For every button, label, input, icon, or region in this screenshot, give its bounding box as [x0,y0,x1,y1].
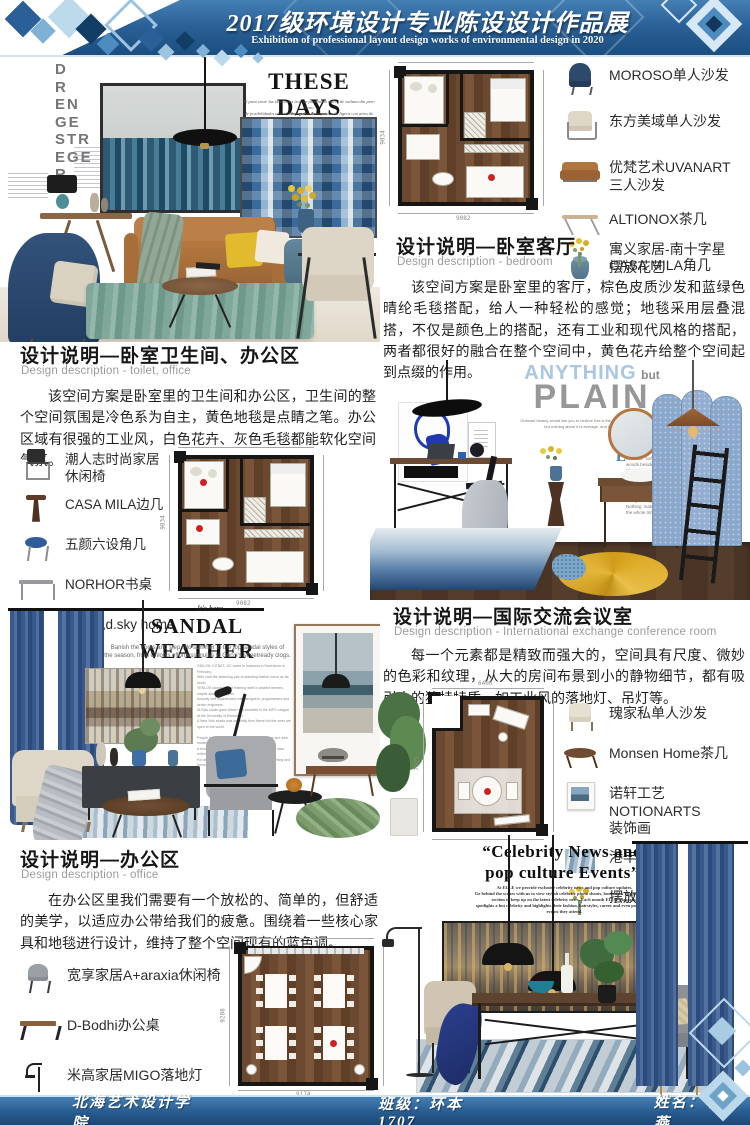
legend-item: 优梵艺术UVANART 三人沙发 [560,154,750,194]
plan-corner-plant [354,1064,365,1075]
decor-vase [101,198,108,212]
plan-toilet [190,467,202,476]
anything-but-plain-collage: ANYTHING but PLAIN Outward beauty would … [370,360,750,600]
bedroom-floor-plan [398,70,534,206]
plan-table-group [314,974,354,1008]
office-desk-icon [18,1012,58,1046]
legend-item-label: 瑰家私单人沙发 [609,700,707,723]
floor-lamp-pole [418,927,420,1075]
legend-item: CASA MILA边几 [16,492,176,526]
legend-item: 寓义家居-南十字星 摆放花艺 [560,236,750,276]
laptop [427,444,455,459]
floor-lamp-icon [18,1062,58,1096]
small-blue-vase [550,466,562,481]
industrial-pendant-lamp [482,943,534,965]
legend-item: Monsen Home茶几 [560,740,750,774]
pendant-cord [142,600,144,676]
legend-item: 潮人志时尚家居 休闲椅 [16,447,176,486]
oval-coffee-table-icon [560,740,600,774]
blue-plant-vase [132,750,146,766]
dimension-line [178,598,314,599]
legend-item-label: 诺轩工艺NOTIONARTS 装饰画 [609,780,750,838]
plan-door-arc [244,956,262,974]
section-title-conference: 设计说明—国际交流会议室 [393,602,633,629]
diamond-decoration [196,44,210,58]
ball-lamp [470,443,484,457]
legend-item: MOROSO单人沙发 [560,62,750,96]
plan-wall [240,523,310,526]
poster-subtitle: Exhibition of professional layout design… [190,35,665,46]
plant-pot [390,798,418,836]
console-table-leg [96,220,116,272]
name-label-text: 姓名： [654,1095,705,1111]
pendant-cord [508,835,510,947]
plan-rug-oval [212,557,234,571]
dimension-label: 9082 [456,215,470,222]
artwork-pendant-cord [335,633,337,677]
plan-wall [182,509,228,512]
framed-art-icon [560,780,600,814]
pendant-cord [204,55,206,133]
pendant-bulb [504,963,512,971]
floor-lamp-head [382,939,394,947]
plan-sofa-set [466,166,524,198]
office-floor-plan [238,946,374,1086]
plan-wardrobe [464,112,486,140]
wood-bench [306,766,378,774]
legend-item: 瑰家私单人沙发 [560,700,750,734]
plan-sink [428,84,437,93]
legend-item-label: 五颜六设角几 [65,532,146,554]
ombre-blue-rug [370,528,562,590]
plan-bed [490,78,526,122]
legend-item: 诺轩工艺NOTIONARTS 装饰画 [560,780,750,838]
dimension-line [423,696,424,832]
desk-leg [394,464,396,536]
blue-deco-vase [168,750,178,766]
micro-text-block [8,173,48,199]
plan-cabinet [468,704,490,716]
toilet-office-floor-plan [178,455,314,591]
dimension-label: 9208 [220,1008,227,1022]
dimension-line [398,62,534,63]
legend-item-label: MOROSO单人沙发 [609,62,729,85]
folding-screen-panel [652,394,684,546]
decor-vase [96,742,106,766]
industrial-chair-icon [16,447,56,481]
plan-marker-dot [196,525,203,532]
console-leg [194,808,196,820]
legend-item-label: 宽享家居A+araxia休闲椅 [67,962,221,985]
plan-chair [458,782,470,800]
legend-item-label: NORHOR书桌 [65,572,152,594]
green-round-rug [296,798,380,838]
pendant-bulb [139,688,145,694]
pedestal-stool [546,482,566,526]
dimension-line [169,455,170,591]
plan-marker-dot [200,479,207,486]
plan-marker-dot [488,174,495,181]
chair-leg [432,1043,434,1073]
poster-footer: 北海艺术设计学院 班级：环本1707 姓名：李明燕 [0,1095,750,1125]
plan-desk-area [406,134,440,160]
pendant-lamp-detail [200,143,209,149]
legend-item-label: 潮人志时尚家居 休闲椅 [65,447,160,486]
sandal-weather-collage: It's here SANDAL WEATHER Banish the boot… [0,600,380,840]
gray-armchair-seat [210,788,272,810]
hat-band [322,756,344,759]
section-subtitle-office: Design description - office [21,869,159,881]
legend-item-label: 寓义家居-南十字星 摆放花艺 [609,236,726,276]
table-lamp-glass-base [56,194,69,209]
yellow-flower-bouquet [288,185,295,192]
collage-subtitle: Banish the boots and step into summer in… [90,644,305,660]
white-armchair-icon [560,700,600,734]
industrial-pendant-lamp [125,672,161,688]
exhibition-poster: 2017级环境设计专业陈设设计作品展 Exhibition of profess… [0,0,750,1125]
legend-item-label: 东方美域单人沙发 [609,108,721,131]
plan-sofa-set [246,551,304,583]
plan-table-group [256,974,296,1008]
section-body-office: 在办公区里我们需要有一个放松的、简单的，但舒适的美学，以适应办公带给我们的疲惫。… [20,890,378,954]
orange-gourd [286,778,302,792]
vanity-leg [604,502,606,548]
dimension-line [389,70,390,206]
abstract-painting [100,83,246,213]
plan-wall [460,74,463,140]
plan-window-strip [248,948,364,954]
legend-item-label: Monsen Home茶几 [609,740,728,763]
dimension-line [398,213,534,214]
plan-closet-strip [244,529,304,538]
armchair-frame-arm [204,784,278,787]
plan-console [494,814,531,826]
plan-desk [493,705,530,730]
plant-leaves [140,718,160,736]
dimension-line [553,696,554,832]
face-artwork-bar [404,466,458,478]
class-label-text: 班级： [378,1097,429,1113]
floor-lamp-base [406,1073,434,1077]
plan-rug-oval [432,172,454,186]
fedora-hat [318,748,348,762]
plan-toilet [410,82,422,91]
dimension-label: 7925 [414,756,421,770]
coffee-table-top [162,277,238,295]
pedestal-side-table-icon [16,492,56,526]
monstera-leaves [604,931,632,955]
white-armchair-seat [306,275,370,301]
plan-bed [270,463,306,507]
plan-wall [402,124,448,127]
dimension-label: 9034 [160,515,167,529]
table-lamp-shade [47,175,77,193]
these-days-collage: D R EN GE STR EGE R THESE DAYS El paso e… [0,55,380,342]
legend-item: 五颜六设角几 [16,532,176,566]
blue-mug [458,452,466,459]
section-subtitle-toilet-office: Design description - toilet, office [21,365,191,377]
celebrity-news-collage: “Celebrity News and pop culture Events” … [380,835,750,1095]
pendant-bulb [688,426,698,438]
diamond-decoration [234,44,248,58]
dimension-label: 6400 [478,680,492,687]
plan-notch [432,696,463,731]
wingback-chair-icon [560,62,600,96]
plan-table-group [256,1026,296,1060]
legend-item: 东方美域单人沙发 [560,108,750,142]
leather-sofa-icon [560,154,600,188]
section-subtitle-conference: Design description - International excha… [394,626,716,638]
collage-pretitle: It's here [150,604,270,613]
plan-marker-dot [484,788,491,795]
console-table-top [40,213,132,219]
legend-item: D-Bodhi办公桌 [18,1012,238,1046]
plan-sink [208,469,217,478]
blue-pillow [215,749,248,780]
console-leg [88,808,90,820]
beige-armchair-icon [560,108,600,142]
micro-text-block [74,147,100,191]
legend-item-label: ALTIONOX茶几 [609,206,707,229]
dimension-line [238,938,374,939]
blue-curtain [636,844,678,1086]
plan-corner-plant [246,1064,257,1075]
white-bottle [561,965,573,993]
gray-chair-icon [18,962,58,996]
plan-wall [226,459,229,509]
dimension-line [229,946,230,1086]
decor-vase [90,193,99,212]
dimension-line [178,447,314,448]
side-table-leg [274,802,284,834]
legend-item: 宽享家居A+araxia休闲椅 [18,962,238,996]
artwork-pendant-lamp [322,674,350,688]
legend-item-label: 优梵艺术UVANART 三人沙发 [609,154,731,194]
poster-header: 2017级环境设计专业陈设设计作品展 Exhibition of profess… [0,0,750,57]
plan-marker-dot [330,1040,337,1047]
class-label: 班级：环本1707 [378,1093,494,1125]
conference-floor-plan [432,696,544,832]
dimension-line [543,70,544,206]
section-subtitle-bedroom: Design description - bedroom [397,256,553,268]
section-title-office: 设计说明—办公区 [20,845,180,872]
collage-credit: Fotografía · Estilismo [241,112,377,116]
armchair-leg [208,810,210,836]
plan-wall [240,459,243,525]
plan-chair [498,732,508,742]
legend-item: ALTIONOX茶几 [560,206,750,240]
pendant-cord [552,835,554,975]
blue-round-stool-icon [16,532,56,566]
plan-chair [506,782,518,800]
legend-item-label: CASA MILA边几 [65,492,163,514]
section-title-toilet-office: 设计说明—卧室卫生间、办公区 [20,341,300,368]
plan-closet-strip [464,144,524,153]
dimension-label: 9034 [380,130,387,144]
plan-wall [446,74,449,124]
school-name: 北海艺术设计学院 [72,1091,200,1125]
legend-item-label: 米高家居MIGO落地灯 [67,1062,202,1085]
plan-wall [460,138,530,141]
plan-wardrobe [244,497,266,525]
section-title-bedroom: 设计说明—卧室客厅 [396,232,576,259]
plant-pot [598,985,616,1003]
potted-plant-leaves [376,744,410,792]
blue-cloth [552,554,586,580]
decor-vase [110,748,118,766]
pendant-cord [692,360,694,412]
table-leg [478,1003,481,1079]
dimension-line [432,688,544,689]
plan-desk-area [186,519,220,545]
dimension-line [323,455,324,591]
legend-item-label: D-Bodhi办公桌 [67,1012,160,1035]
yellow-flowers [540,448,546,454]
poster-title: 2017级环境设计专业陈设设计作品展 [190,3,665,38]
bench-leg [368,774,374,796]
